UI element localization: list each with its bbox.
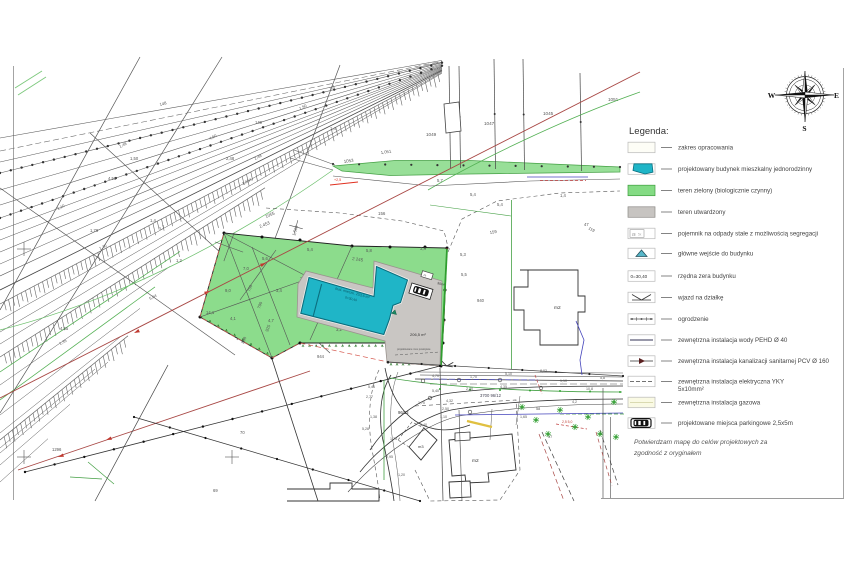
svg-text:47: 47 [584, 222, 589, 227]
svg-text:5,8: 5,8 [600, 376, 605, 380]
svg-text:5,4: 5,4 [307, 247, 313, 252]
svg-text:1,50: 1,50 [130, 156, 139, 161]
svg-text:1,2: 1,2 [176, 258, 182, 263]
svg-text:m2: m2 [472, 458, 479, 464]
svg-text:4,7: 4,7 [268, 318, 274, 323]
svg-text:+2,5: +2,5 [334, 178, 341, 182]
svg-text:5,8: 5,8 [366, 248, 372, 253]
svg-text:149: 149 [255, 120, 263, 125]
svg-text:2,50: 2,50 [442, 407, 449, 411]
svg-text:1,70: 1,70 [470, 375, 477, 379]
svg-text:70: 70 [240, 430, 245, 435]
svg-text:1049: 1049 [426, 132, 437, 137]
svg-text:944: 944 [317, 354, 325, 359]
svg-text:pojemnik na odpady stałe z moż: pojemnik na odpady stałe z możliwością s… [678, 231, 818, 238]
svg-text:2,48: 2,48 [226, 156, 235, 161]
svg-text:69: 69 [213, 488, 218, 493]
svg-text:4,1: 4,1 [230, 316, 236, 321]
svg-text:1,4: 1,4 [150, 218, 156, 223]
svg-text:5,28: 5,28 [362, 427, 369, 431]
svg-text:1,10: 1,10 [560, 379, 567, 383]
svg-text:teren utwardzony: teren utwardzony [678, 209, 726, 216]
svg-text:1,20: 1,20 [398, 473, 405, 477]
svg-text:5x10mm²: 5x10mm² [678, 386, 704, 393]
svg-text:5,4: 5,4 [470, 192, 476, 197]
svg-text:5,40: 5,40 [432, 389, 439, 393]
svg-text:1047: 1047 [484, 121, 495, 126]
svg-text:1,4: 1,4 [560, 193, 566, 198]
svg-text:14,1: 14,1 [206, 310, 215, 315]
svg-text:ogrodzenie: ogrodzenie [678, 316, 709, 323]
svg-text:5,4: 5,4 [497, 202, 503, 207]
svg-text:1,4: 1,4 [330, 126, 336, 131]
svg-text:rzędna zera budynku: rzędna zera budynku [678, 273, 736, 280]
svg-text:0=30,40: 0=30,40 [631, 274, 648, 279]
svg-text:5,3: 5,3 [460, 252, 466, 257]
svg-text:4,35: 4,35 [500, 385, 507, 389]
svg-text:zewnętrzna instalacja gazowa: zewnętrzna instalacja gazowa [678, 400, 761, 407]
svg-text:wjazd na działkę: wjazd na działkę [677, 295, 724, 302]
svg-text:projektowany budynek mieszkaln: projektowany budynek mieszkalny jednorod… [678, 166, 813, 173]
svg-text:5x: 5x [638, 232, 642, 236]
svg-text:1045: 1045 [543, 111, 554, 116]
svg-text:1,78: 1,78 [90, 228, 99, 233]
svg-text:4,55: 4,55 [60, 326, 69, 331]
svg-text:10,8: 10,8 [586, 387, 593, 391]
svg-text:156: 156 [378, 211, 386, 216]
svg-text:1,70: 1,70 [418, 401, 425, 405]
svg-text:1296: 1296 [52, 447, 62, 452]
svg-text:główne wejście do budynku: główne wejście do budynku [678, 251, 754, 258]
svg-text:5,7: 5,7 [437, 178, 443, 183]
svg-text:940: 940 [477, 298, 485, 303]
svg-text:2,5 5,0: 2,5 5,0 [562, 420, 572, 424]
svg-text:teren zielony (biologicznie cz: teren zielony (biologicznie czynny) [678, 188, 772, 195]
svg-text:Potwierdzam mapę do celów proj: Potwierdzam mapę do celów projektowych z… [634, 439, 768, 446]
svg-text:3,4: 3,4 [420, 246, 426, 251]
svg-text:4,53: 4,53 [108, 176, 117, 181]
svg-text:7,0: 7,0 [243, 266, 249, 271]
svg-text:m2: m2 [554, 305, 561, 311]
svg-text:zewnętrzna instalacja wody PEH: zewnętrzna instalacja wody PEHD Ø 40 [678, 337, 788, 344]
svg-text:2,77: 2,77 [366, 395, 373, 399]
svg-text:96/13: 96/13 [398, 410, 409, 415]
svg-text:5,46: 5,46 [368, 385, 375, 389]
svg-text:2,95: 2,95 [386, 455, 393, 459]
svg-text:W: W [768, 91, 776, 100]
svg-text:4,32: 4,32 [446, 399, 453, 403]
svg-text:1,73: 1,73 [390, 437, 397, 441]
svg-text:projektowane miejsca parkingow: projektowane miejsca parkingowe 2,5x5m [678, 420, 793, 427]
svg-text:projektowane mce postojowe: projektowane mce postojowe [397, 347, 431, 351]
svg-text:zewnętrzna instalacja kanaliza: zewnętrzna instalacja kanalizacji sanita… [678, 358, 830, 365]
svg-text:5,6: 5,6 [262, 256, 268, 261]
svg-text:9,0: 9,0 [225, 288, 231, 293]
svg-text:8,03: 8,03 [540, 369, 547, 373]
svg-text:3,4: 3,4 [276, 288, 282, 293]
svg-text:1,65: 1,65 [520, 415, 527, 419]
svg-text:5,5: 5,5 [461, 272, 467, 277]
svg-text:5,10: 5,10 [505, 372, 512, 376]
svg-text:E: E [834, 91, 839, 100]
svg-text:S: S [802, 124, 806, 133]
svg-text:2,70: 2,70 [466, 387, 473, 391]
svg-text:206,5 m²: 206,5 m² [410, 332, 426, 337]
svg-text:3700 96/12: 3700 96/12 [480, 393, 502, 398]
svg-text:5,40: 5,40 [420, 423, 427, 427]
svg-text:zs: zs [632, 232, 636, 236]
svg-text:zakres opracowania: zakres opracowania [678, 145, 734, 152]
svg-text:4,2: 4,2 [572, 400, 577, 404]
svg-text:1,38: 1,38 [370, 415, 377, 419]
svg-text:Legenda:: Legenda: [629, 126, 669, 137]
svg-text:1051: 1051 [608, 97, 619, 102]
svg-text:zewnętrzna instalacja elektryc: zewnętrzna instalacja elektryczna YKY [678, 379, 784, 386]
svg-text:58: 58 [536, 407, 540, 411]
svg-text:4,70: 4,70 [432, 374, 439, 378]
svg-text:1,10: 1,10 [440, 415, 447, 419]
svg-text:m3: m3 [418, 444, 424, 449]
svg-text:zgodność z oryginałem: zgodność z oryginałem [633, 450, 702, 457]
